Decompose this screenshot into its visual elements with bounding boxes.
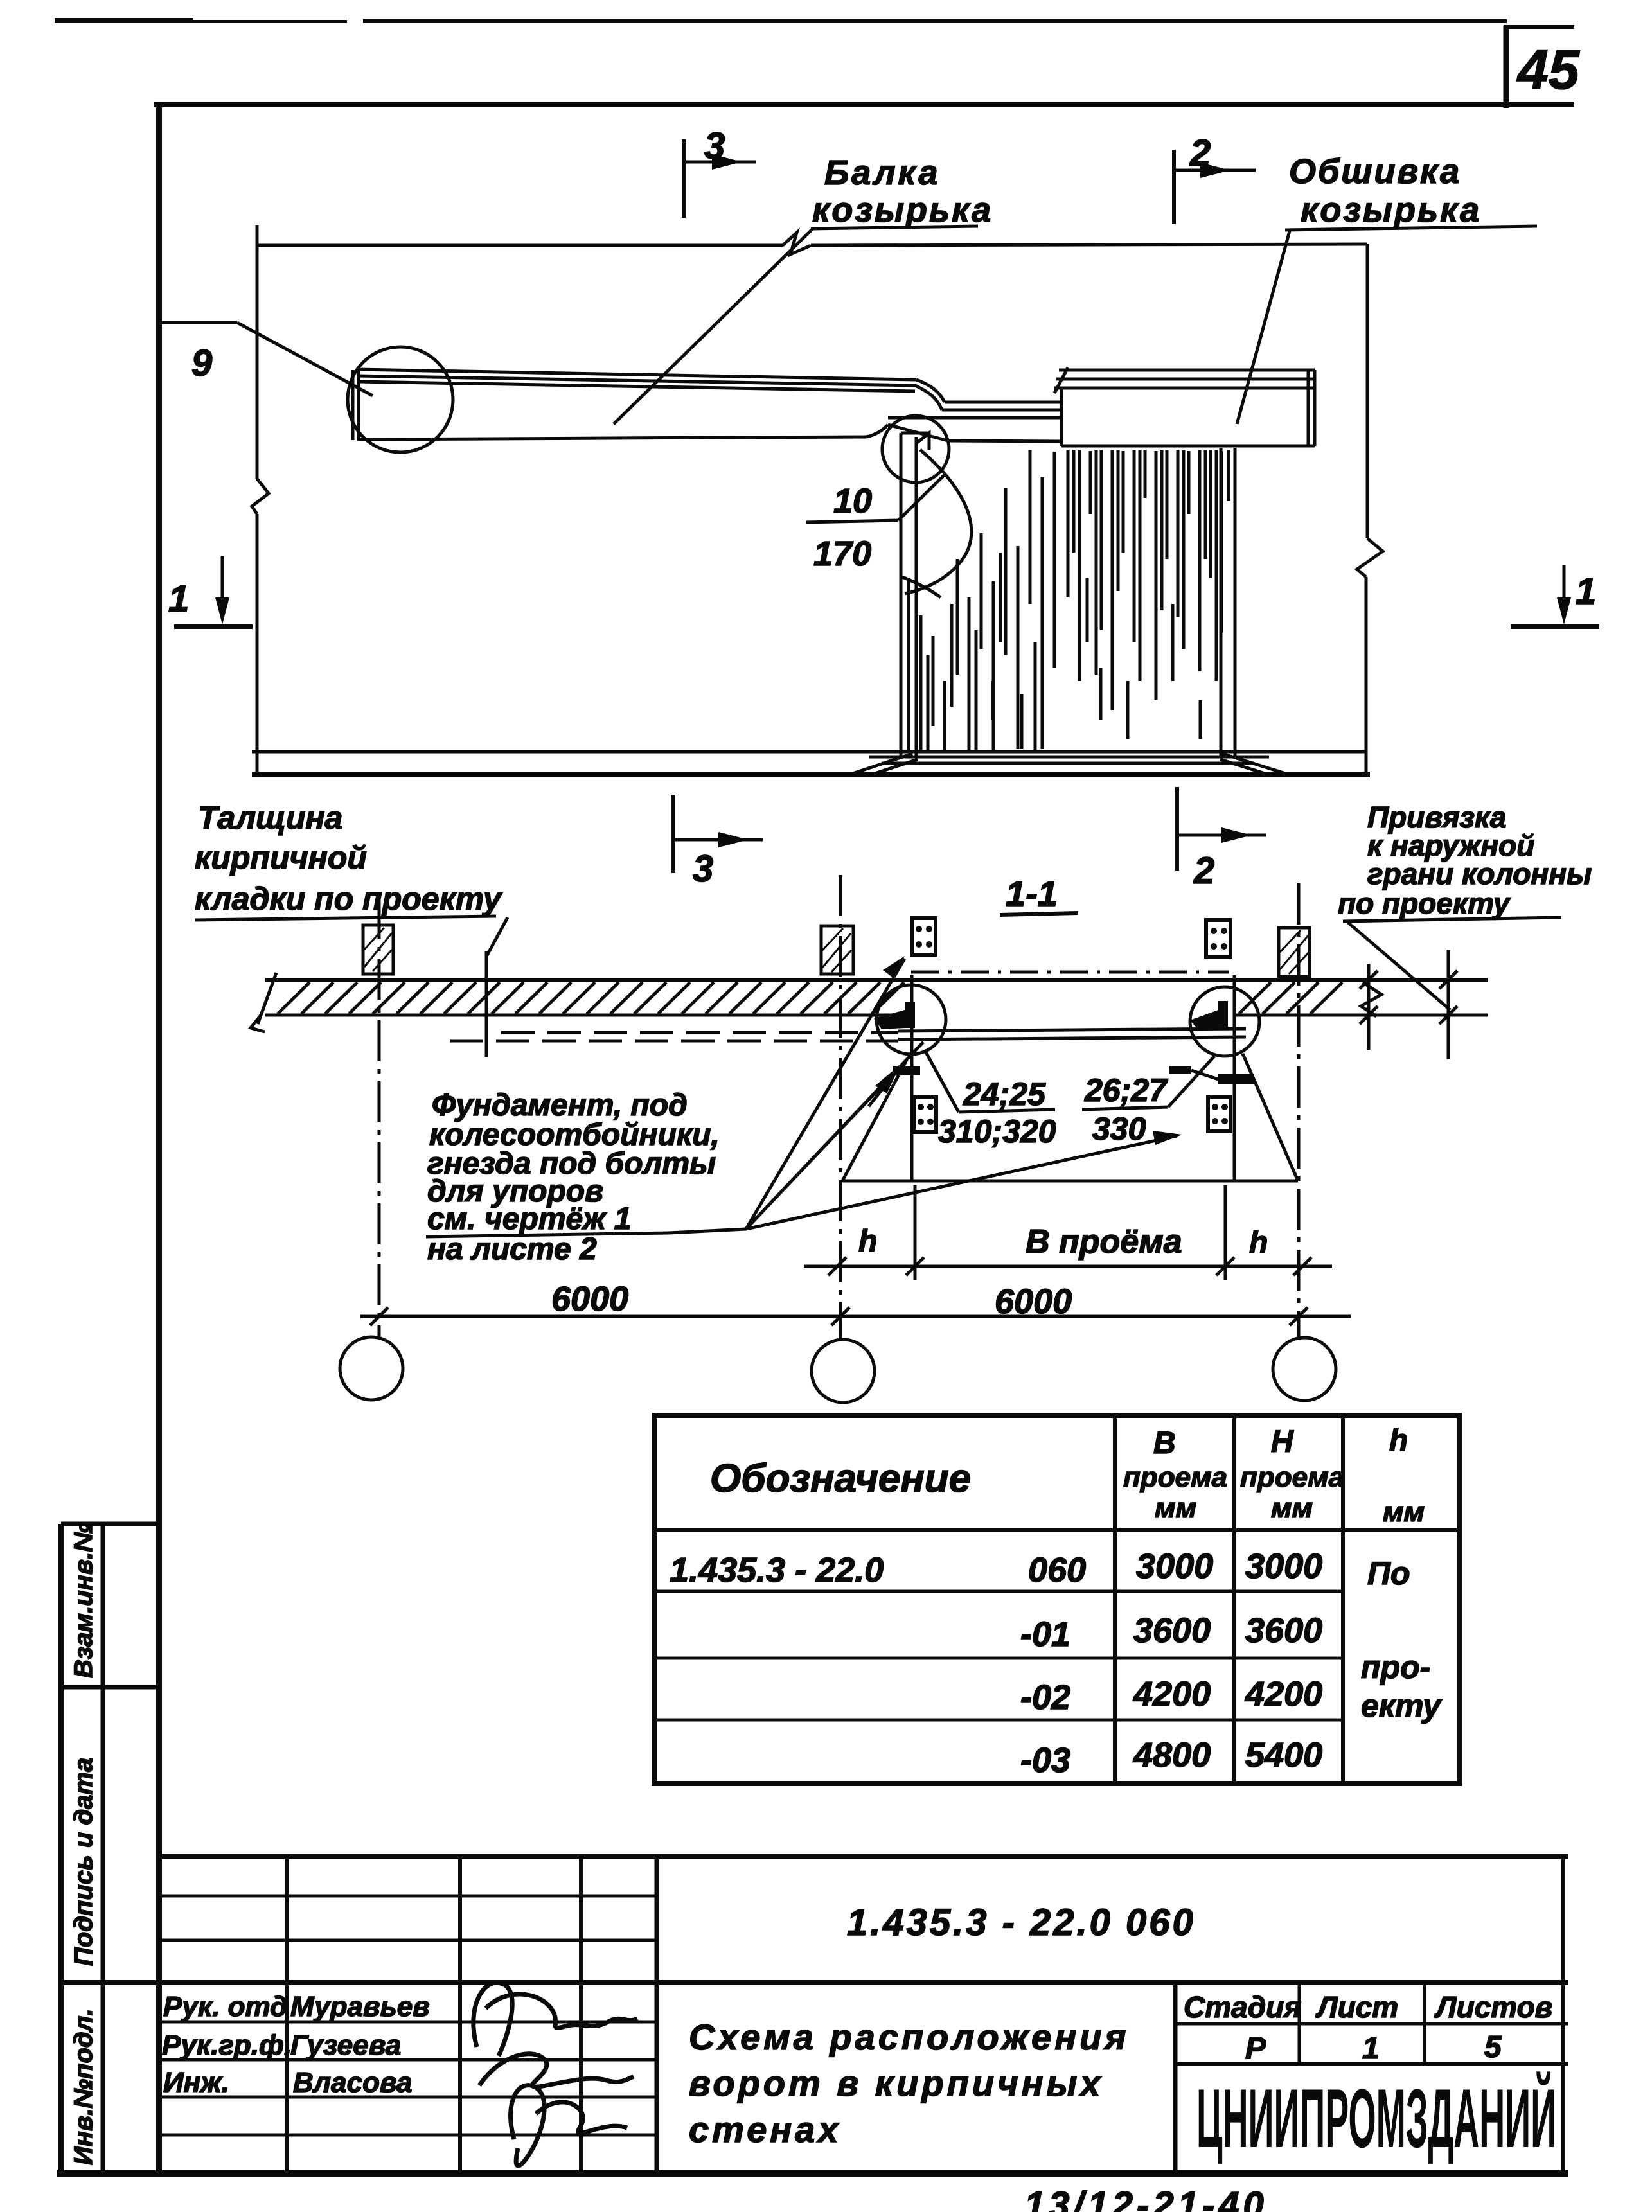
svg-text:Стадия: Стадия xyxy=(1184,1990,1301,2024)
svg-text:h: h xyxy=(858,1225,877,1259)
svg-text:Н: Н xyxy=(1271,1425,1294,1459)
svg-text:3000: 3000 xyxy=(1136,1547,1213,1586)
svg-text:проема: проема xyxy=(1240,1462,1344,1493)
svg-text:Рук.гр.ф.: Рук.гр.ф. xyxy=(162,2030,292,2061)
svg-text:5: 5 xyxy=(1484,2030,1502,2064)
svg-text:Подпись и дата: Подпись и дата xyxy=(69,1758,98,1966)
svg-text:h: h xyxy=(1389,1424,1408,1458)
svg-text:Схема расположения: Схема расположения xyxy=(689,2017,1129,2057)
svg-text:3600: 3600 xyxy=(1133,1611,1211,1650)
svg-text:3: 3 xyxy=(693,848,713,890)
svg-text:Листов: Листов xyxy=(1434,1990,1552,2024)
svg-text:кирпичной: кирпичной xyxy=(195,840,367,876)
svg-text:1: 1 xyxy=(1576,571,1596,612)
svg-text:2: 2 xyxy=(1189,132,1211,174)
svg-text:Гузеева: Гузеева xyxy=(290,2030,401,2061)
svg-text:Р: Р xyxy=(1245,2031,1266,2066)
svg-text:мм: мм xyxy=(1271,1492,1313,1524)
svg-text:Инв.№подл.: Инв.№подл. xyxy=(69,2008,98,2165)
svg-text:-02: -02 xyxy=(1020,1678,1070,1717)
svg-text:стенах: стенах xyxy=(689,2109,841,2150)
svg-text:170: 170 xyxy=(813,535,871,573)
svg-text:4800: 4800 xyxy=(1133,1736,1211,1774)
svg-text:1-1: 1-1 xyxy=(1006,873,1058,914)
svg-text:Талщина: Талщина xyxy=(198,800,342,836)
svg-text:1: 1 xyxy=(168,578,189,620)
svg-text:Рук. отд: Рук. отд xyxy=(163,1991,287,2022)
svg-text:3: 3 xyxy=(704,125,725,167)
svg-text:5400: 5400 xyxy=(1245,1736,1322,1774)
svg-text:45: 45 xyxy=(1516,39,1580,101)
svg-text:2: 2 xyxy=(1193,850,1214,892)
svg-text:По: По xyxy=(1367,1555,1410,1591)
svg-text:В проёма: В проёма xyxy=(1026,1223,1182,1261)
svg-text:мм: мм xyxy=(1383,1496,1425,1528)
svg-text:Балка: Балка xyxy=(824,154,941,192)
svg-text:на листе 2: на листе 2 xyxy=(427,1232,597,1266)
svg-text:13/12-21-40: 13/12-21-40 xyxy=(1024,2184,1268,2212)
svg-text:ворот в кирпичных: ворот в кирпичных xyxy=(689,2063,1103,2103)
svg-text:4200: 4200 xyxy=(1133,1675,1211,1713)
svg-text:Инж.: Инж. xyxy=(163,2067,229,2098)
svg-text:-01: -01 xyxy=(1020,1615,1070,1654)
svg-text:10: 10 xyxy=(833,482,872,520)
svg-text:см. чертёж 1: см. чертёж 1 xyxy=(427,1202,632,1236)
svg-text:Взам.инв.№: Взам.инв.№ xyxy=(69,1523,98,1678)
svg-text:В: В xyxy=(1153,1426,1176,1460)
svg-text:Муравьев: Муравьев xyxy=(290,1991,430,2022)
svg-text:грани колонны: грани колонны xyxy=(1367,857,1592,890)
svg-text:по проекту: по проекту xyxy=(1338,887,1511,920)
svg-text:060: 060 xyxy=(1028,1551,1086,1589)
svg-text:Обшивка: Обшивка xyxy=(1289,152,1461,191)
svg-text:h: h xyxy=(1249,1226,1268,1260)
svg-text:Лист: Лист xyxy=(1315,1990,1398,2024)
svg-text:6000: 6000 xyxy=(551,1280,628,1318)
svg-text:310;320: 310;320 xyxy=(938,1113,1056,1149)
svg-text:3000: 3000 xyxy=(1245,1547,1322,1586)
svg-text:4200: 4200 xyxy=(1245,1675,1322,1713)
svg-text:3600: 3600 xyxy=(1245,1611,1322,1650)
svg-text:1: 1 xyxy=(1362,2031,1380,2066)
svg-text:24;25: 24;25 xyxy=(963,1076,1046,1112)
svg-text:9: 9 xyxy=(191,342,212,384)
svg-text:козырька: козырька xyxy=(812,191,993,229)
svg-text:26;27: 26;27 xyxy=(1084,1072,1168,1108)
svg-text:про-: про- xyxy=(1361,1649,1430,1685)
svg-text:330: 330 xyxy=(1092,1111,1146,1147)
svg-text:-03: -03 xyxy=(1020,1741,1070,1780)
svg-text:1.435.3 - 22.0: 1.435.3 - 22.0 xyxy=(670,1551,884,1589)
svg-text:козырька: козырька xyxy=(1301,191,1481,229)
svg-text:кладки по проекту: кладки по проекту xyxy=(195,881,502,917)
svg-text:Обозначение: Обозначение xyxy=(710,1456,971,1501)
svg-text:мм: мм xyxy=(1155,1492,1196,1524)
svg-text:екту: екту xyxy=(1361,1688,1442,1724)
svg-text:1.435.3 - 22.0 060: 1.435.3 - 22.0 060 xyxy=(847,1902,1196,1943)
svg-text:проема: проема xyxy=(1123,1462,1227,1493)
svg-text:Власова: Власова xyxy=(293,2067,412,2098)
svg-text:ЦНИИПРОМЗДАНИЙ: ЦНИИПРОМЗДАНИЙ xyxy=(1196,2071,1556,2165)
svg-text:6000: 6000 xyxy=(995,1282,1072,1321)
